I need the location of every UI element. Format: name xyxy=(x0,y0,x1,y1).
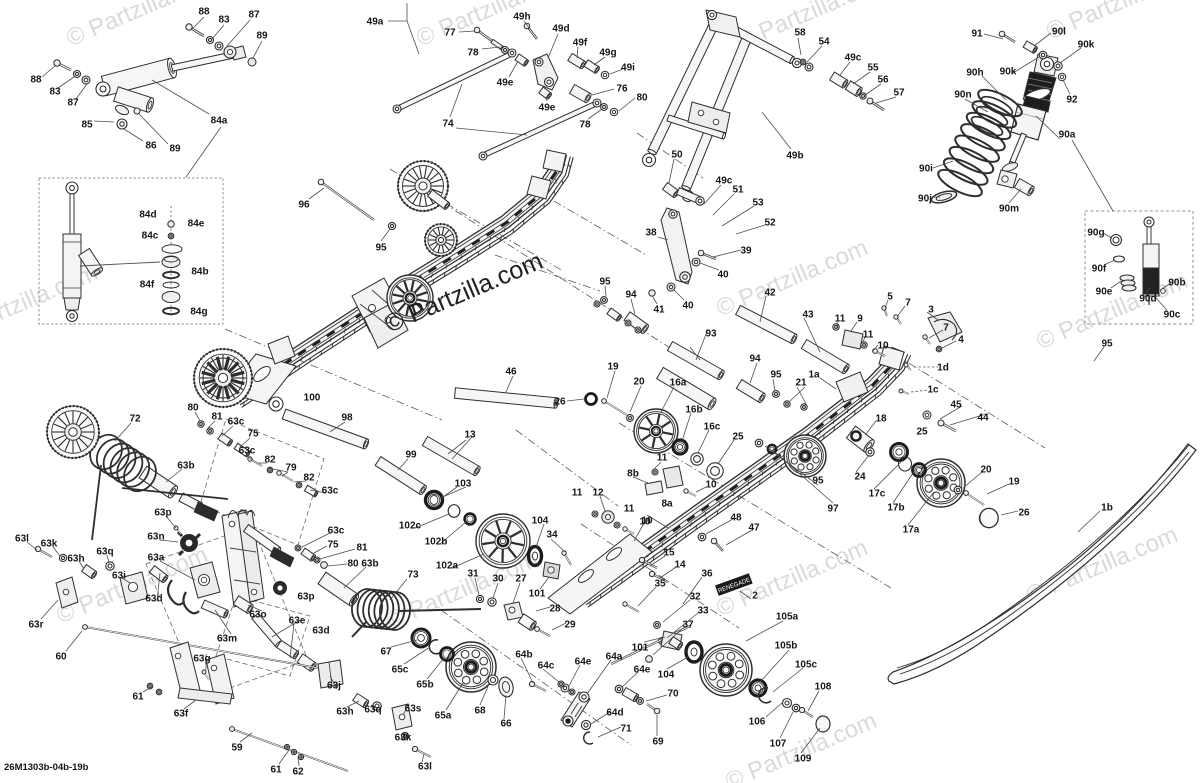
svg-text:20: 20 xyxy=(980,465,992,476)
svg-text:81: 81 xyxy=(211,412,223,423)
svg-text:83: 83 xyxy=(49,87,61,98)
svg-text:1b: 1b xyxy=(1101,503,1113,514)
svg-text:65b: 65b xyxy=(416,680,433,691)
svg-text:100: 100 xyxy=(304,393,321,404)
svg-text:19: 19 xyxy=(1008,477,1020,488)
svg-text:17a: 17a xyxy=(903,525,920,536)
svg-text:102c: 102c xyxy=(399,521,422,532)
svg-text:60: 60 xyxy=(55,652,67,663)
svg-text:25: 25 xyxy=(916,427,928,438)
svg-text:64e: 64e xyxy=(575,657,592,668)
svg-text:63m: 63m xyxy=(217,634,237,645)
svg-text:59: 59 xyxy=(231,743,243,754)
svg-text:10: 10 xyxy=(877,341,889,352)
svg-text:63h: 63h xyxy=(67,554,84,565)
svg-text:63n: 63n xyxy=(147,532,164,543)
svg-text:47: 47 xyxy=(748,523,760,534)
svg-text:49c: 49c xyxy=(716,176,733,187)
svg-text:108: 108 xyxy=(815,682,832,693)
svg-text:105c: 105c xyxy=(795,660,818,671)
svg-text:58: 58 xyxy=(794,28,806,39)
svg-text:84e: 84e xyxy=(188,219,205,230)
svg-text:3: 3 xyxy=(928,305,934,316)
svg-text:16c: 16c xyxy=(704,422,721,433)
svg-text:67: 67 xyxy=(380,647,392,658)
svg-text:95: 95 xyxy=(812,476,824,487)
svg-text:63f: 63f xyxy=(174,709,189,720)
svg-text:37: 37 xyxy=(682,620,694,631)
svg-text:14: 14 xyxy=(674,560,686,571)
svg-text:64c: 64c xyxy=(538,661,555,672)
svg-text:35: 35 xyxy=(654,579,666,590)
svg-text:78: 78 xyxy=(467,48,479,59)
svg-text:26: 26 xyxy=(1018,508,1030,519)
svg-text:19: 19 xyxy=(607,362,619,373)
svg-text:27: 27 xyxy=(515,574,527,585)
svg-text:88: 88 xyxy=(30,75,42,86)
svg-text:55: 55 xyxy=(867,63,879,74)
svg-text:63q: 63q xyxy=(96,547,113,558)
svg-text:63c: 63c xyxy=(328,526,345,537)
svg-text:41: 41 xyxy=(653,305,665,316)
svg-text:7: 7 xyxy=(943,323,949,334)
svg-text:82: 82 xyxy=(303,473,315,484)
svg-text:88: 88 xyxy=(198,7,210,18)
svg-text:103: 103 xyxy=(455,479,472,490)
svg-text:16a: 16a xyxy=(670,378,687,389)
svg-text:52: 52 xyxy=(764,218,776,229)
svg-text:104: 104 xyxy=(532,516,549,527)
svg-text:75: 75 xyxy=(247,429,259,440)
svg-text:49b: 49b xyxy=(786,151,803,162)
svg-text:75: 75 xyxy=(327,540,339,551)
svg-text:36: 36 xyxy=(701,569,713,580)
svg-text:56: 56 xyxy=(877,75,889,86)
svg-text:16b: 16b xyxy=(685,405,702,416)
svg-text:80: 80 xyxy=(347,559,359,570)
svg-text:63r: 63r xyxy=(28,620,43,631)
svg-text:11: 11 xyxy=(572,488,583,499)
svg-text:8a: 8a xyxy=(661,499,673,510)
svg-text:84g: 84g xyxy=(190,307,207,318)
svg-text:63c: 63c xyxy=(322,486,339,497)
svg-text:91: 91 xyxy=(971,29,983,40)
svg-text:84f: 84f xyxy=(140,280,155,291)
svg-text:70: 70 xyxy=(667,689,679,700)
svg-text:17b: 17b xyxy=(887,503,904,514)
svg-text:90d: 90d xyxy=(1139,294,1156,305)
svg-text:84d: 84d xyxy=(139,210,156,221)
svg-text:1d: 1d xyxy=(937,363,949,374)
svg-text:63l: 63l xyxy=(15,534,29,545)
svg-text:8b: 8b xyxy=(627,469,639,480)
svg-text:64d: 64d xyxy=(606,708,623,719)
svg-text:78: 78 xyxy=(579,120,591,131)
svg-text:26: 26 xyxy=(554,397,566,408)
svg-text:90m: 90m xyxy=(999,204,1019,215)
svg-text:104: 104 xyxy=(658,670,675,681)
svg-text:63p: 63p xyxy=(154,508,171,519)
svg-text:102b: 102b xyxy=(425,537,448,548)
svg-text:49c: 49c xyxy=(845,53,862,64)
svg-text:49a: 49a xyxy=(367,17,384,28)
svg-text:54: 54 xyxy=(818,37,830,48)
svg-text:74: 74 xyxy=(442,119,454,130)
svg-text:34: 34 xyxy=(546,530,558,541)
svg-text:90f: 90f xyxy=(1092,264,1107,275)
svg-text:89: 89 xyxy=(169,144,181,155)
svg-text:63h: 63h xyxy=(336,707,353,718)
svg-text:15: 15 xyxy=(663,548,675,559)
svg-text:73: 73 xyxy=(407,570,419,581)
svg-text:90j: 90j xyxy=(918,194,932,205)
svg-text:90b: 90b xyxy=(1168,278,1185,289)
svg-text:106: 106 xyxy=(749,717,766,728)
svg-text:84c: 84c xyxy=(142,231,159,242)
svg-text:57: 57 xyxy=(893,88,905,99)
svg-text:63k: 63k xyxy=(395,733,412,744)
svg-text:7: 7 xyxy=(905,298,911,309)
svg-text:24: 24 xyxy=(854,472,866,483)
svg-text:96: 96 xyxy=(298,200,310,211)
svg-text:62: 62 xyxy=(292,767,304,778)
svg-text:64b: 64b xyxy=(515,650,532,661)
svg-text:90h: 90h xyxy=(966,68,983,79)
svg-text:63j: 63j xyxy=(327,681,341,692)
svg-text:31: 31 xyxy=(467,569,479,580)
svg-text:107: 107 xyxy=(770,739,787,750)
svg-text:80: 80 xyxy=(187,403,199,414)
svg-text:77: 77 xyxy=(444,28,456,39)
svg-text:5: 5 xyxy=(887,292,893,303)
svg-text:95: 95 xyxy=(1101,339,1113,350)
svg-text:29: 29 xyxy=(564,620,576,631)
svg-text:20: 20 xyxy=(633,377,645,388)
svg-text:84a: 84a xyxy=(211,116,228,127)
svg-text:72: 72 xyxy=(129,414,141,425)
svg-text:102a: 102a xyxy=(436,561,459,572)
svg-text:32: 32 xyxy=(689,592,701,603)
svg-text:94: 94 xyxy=(625,290,637,301)
svg-text:2: 2 xyxy=(752,591,758,602)
svg-text:81: 81 xyxy=(356,543,368,554)
svg-text:83: 83 xyxy=(218,15,230,26)
svg-text:1c: 1c xyxy=(927,385,939,396)
svg-text:49h: 49h xyxy=(513,12,530,23)
svg-text:79: 79 xyxy=(285,463,297,474)
svg-text:49f: 49f xyxy=(573,38,588,49)
svg-text:61: 61 xyxy=(270,765,282,776)
svg-text:42: 42 xyxy=(764,288,776,299)
svg-text:63i: 63i xyxy=(112,571,126,582)
svg-text:84b: 84b xyxy=(191,267,208,278)
svg-text:105a: 105a xyxy=(776,612,799,623)
svg-text:66: 66 xyxy=(500,719,512,730)
svg-text:90c: 90c xyxy=(1164,310,1181,321)
svg-text:10: 10 xyxy=(705,480,717,491)
svg-text:26M1303b-04b-19b: 26M1303b-04b-19b xyxy=(4,762,89,773)
svg-text:28: 28 xyxy=(549,604,561,615)
svg-text:63e: 63e xyxy=(289,616,306,627)
svg-text:87: 87 xyxy=(67,98,79,109)
svg-text:11: 11 xyxy=(624,504,635,515)
svg-text:90g: 90g xyxy=(1087,228,1104,239)
svg-text:63b: 63b xyxy=(361,559,378,570)
svg-text:98: 98 xyxy=(341,413,353,424)
svg-text:82: 82 xyxy=(264,455,276,466)
svg-text:90i: 90i xyxy=(919,164,933,175)
svg-text:63a: 63a xyxy=(148,553,165,564)
svg-text:49e: 49e xyxy=(539,103,556,114)
svg-text:9: 9 xyxy=(857,314,863,325)
svg-text:63d: 63d xyxy=(312,626,329,637)
svg-text:63q: 63q xyxy=(364,705,381,716)
svg-text:90l: 90l xyxy=(1052,27,1066,38)
svg-text:46: 46 xyxy=(505,367,517,378)
svg-text:48: 48 xyxy=(730,513,742,524)
svg-text:13: 13 xyxy=(464,430,476,441)
svg-text:45: 45 xyxy=(950,400,962,411)
svg-text:80: 80 xyxy=(636,93,648,104)
svg-text:64a: 64a xyxy=(606,652,623,663)
svg-text:63d: 63d xyxy=(145,594,162,605)
svg-text:63g: 63g xyxy=(193,654,210,665)
svg-text:63c: 63c xyxy=(239,446,256,457)
svg-text:49e: 49e xyxy=(497,78,514,89)
svg-text:12: 12 xyxy=(592,488,604,499)
svg-text:63b: 63b xyxy=(177,461,194,472)
svg-text:38: 38 xyxy=(645,228,657,239)
svg-text:87: 87 xyxy=(248,10,260,21)
svg-text:33: 33 xyxy=(697,606,709,617)
svg-text:61: 61 xyxy=(132,692,144,703)
svg-text:76: 76 xyxy=(616,84,628,95)
svg-text:63k: 63k xyxy=(41,539,58,550)
svg-text:93: 93 xyxy=(705,329,717,340)
svg-text:11: 11 xyxy=(657,453,668,464)
svg-text:95: 95 xyxy=(375,243,387,254)
svg-text:49g: 49g xyxy=(599,48,616,59)
svg-text:17c: 17c xyxy=(869,489,886,500)
svg-text:92: 92 xyxy=(1066,95,1078,106)
svg-text:99: 99 xyxy=(405,450,417,461)
svg-text:90e: 90e xyxy=(1096,287,1113,298)
svg-text:49d: 49d xyxy=(552,24,569,35)
svg-text:63s: 63s xyxy=(405,704,422,715)
svg-text:89: 89 xyxy=(256,31,268,42)
svg-text:63c: 63c xyxy=(228,417,245,428)
svg-text:101: 101 xyxy=(529,589,546,600)
svg-text:109: 109 xyxy=(795,754,812,765)
svg-text:18: 18 xyxy=(875,414,887,425)
svg-text:90n: 90n xyxy=(954,90,971,101)
svg-text:49i: 49i xyxy=(621,63,635,74)
svg-text:101: 101 xyxy=(632,643,649,654)
svg-text:97: 97 xyxy=(827,504,839,515)
svg-text:63o: 63o xyxy=(249,610,266,621)
svg-text:94: 94 xyxy=(749,354,761,365)
svg-text:40: 40 xyxy=(682,301,694,312)
svg-text:65a: 65a xyxy=(435,711,452,722)
svg-text:85: 85 xyxy=(81,120,93,131)
svg-text:71: 71 xyxy=(620,724,632,735)
svg-text:64e: 64e xyxy=(634,665,651,676)
svg-text:21: 21 xyxy=(795,378,807,389)
svg-text:69: 69 xyxy=(652,737,664,748)
svg-text:25: 25 xyxy=(732,432,744,443)
svg-text:90k: 90k xyxy=(1078,40,1095,51)
svg-text:105b: 105b xyxy=(775,641,798,652)
svg-text:86: 86 xyxy=(145,141,157,152)
svg-text:39: 39 xyxy=(740,246,752,257)
svg-text:63p: 63p xyxy=(297,592,314,603)
svg-text:90a: 90a xyxy=(1059,130,1076,141)
svg-text:95: 95 xyxy=(599,277,611,288)
svg-text:90k: 90k xyxy=(1000,67,1017,78)
svg-text:40: 40 xyxy=(717,270,729,281)
svg-text:43: 43 xyxy=(802,310,814,321)
svg-text:1a: 1a xyxy=(808,370,820,381)
svg-text:30: 30 xyxy=(492,574,504,585)
svg-text:11: 11 xyxy=(835,314,846,325)
svg-text:10: 10 xyxy=(639,517,651,528)
svg-text:51: 51 xyxy=(732,185,744,196)
svg-text:44: 44 xyxy=(977,413,989,424)
svg-text:65c: 65c xyxy=(392,665,409,676)
svg-text:4: 4 xyxy=(958,335,964,346)
svg-text:11: 11 xyxy=(863,330,874,341)
svg-text:95: 95 xyxy=(770,370,782,381)
svg-text:50: 50 xyxy=(671,150,683,161)
svg-text:63l: 63l xyxy=(418,762,432,773)
svg-text:68: 68 xyxy=(474,706,486,717)
svg-text:53: 53 xyxy=(752,198,764,209)
